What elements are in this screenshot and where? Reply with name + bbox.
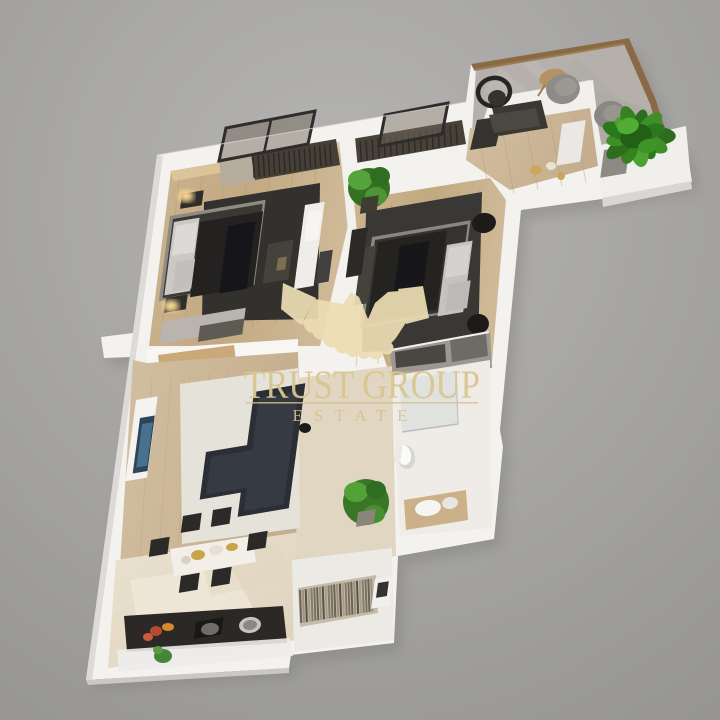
svg-text:TRUST GROUP: TRUST GROUP: [244, 362, 480, 407]
svg-text:ESTATE: ESTATE: [293, 406, 420, 425]
